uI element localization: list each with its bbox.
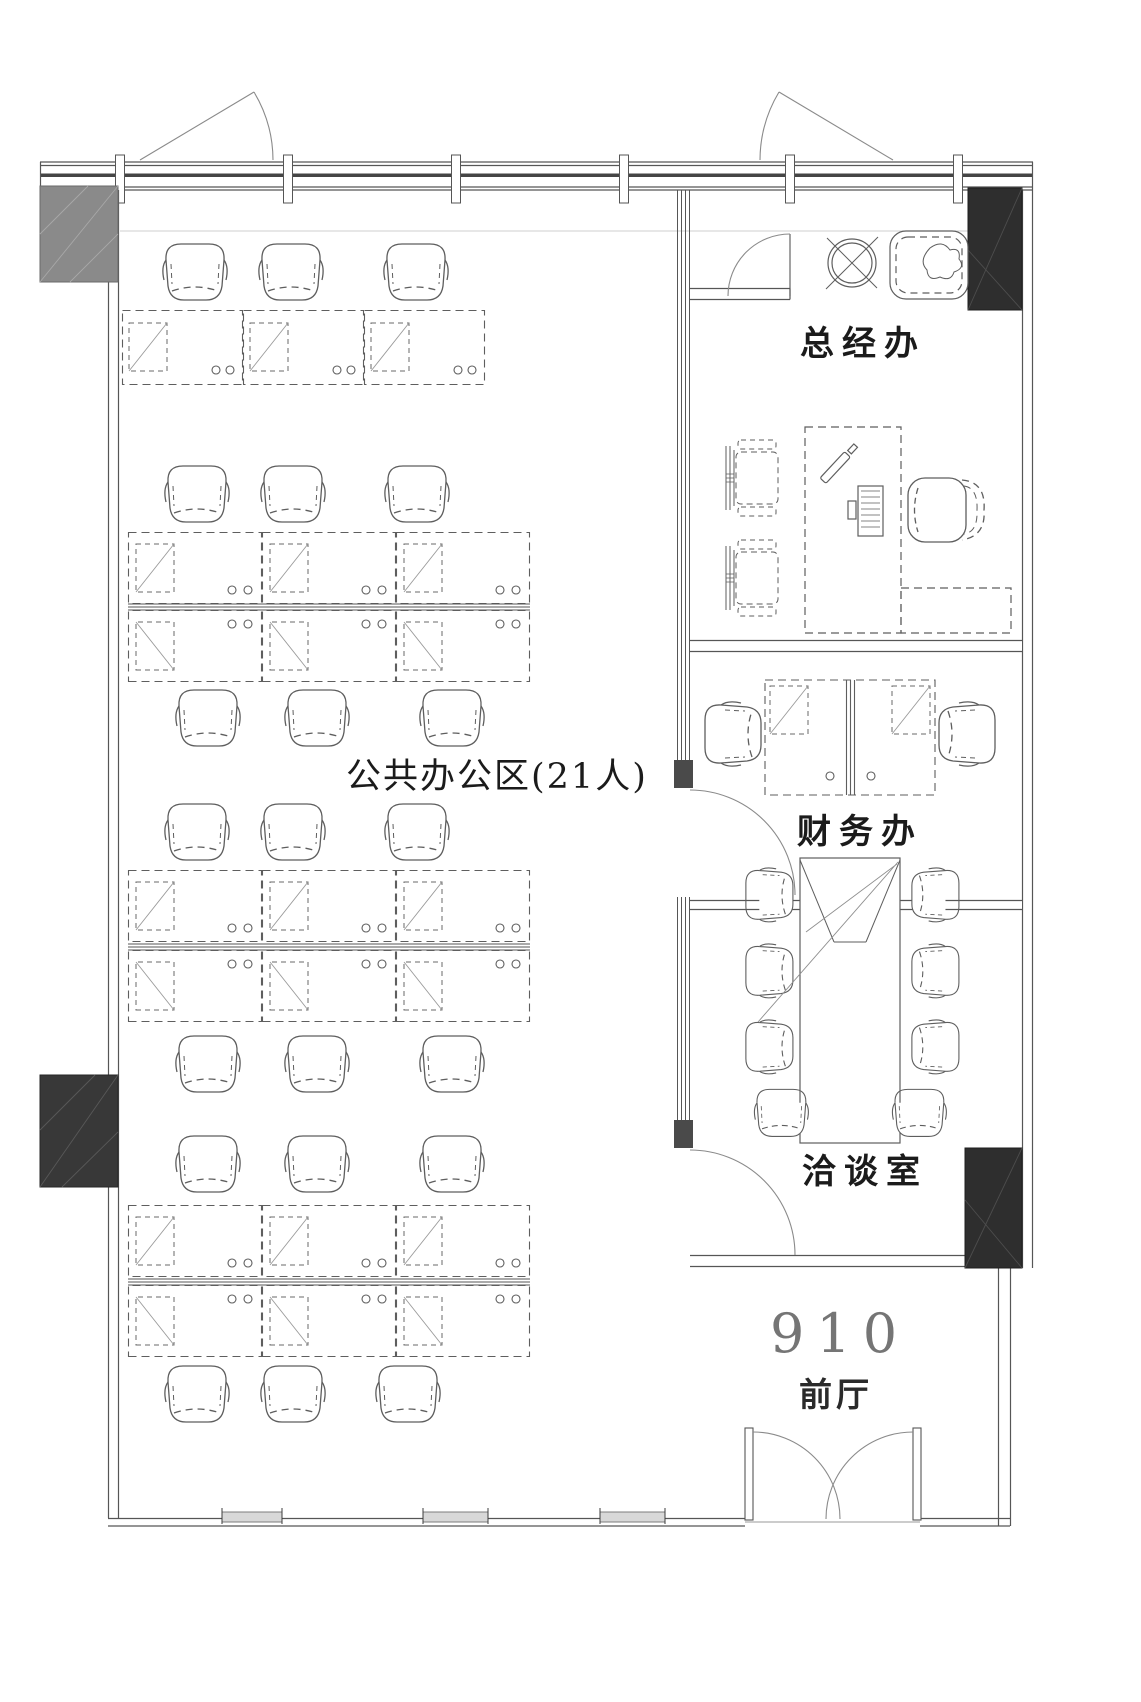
round-table: [826, 237, 878, 289]
bottom-windows: [222, 1508, 665, 1524]
meeting-room-door: [690, 1150, 795, 1255]
keyboard: [848, 486, 883, 536]
lounge-chair-plant: [890, 231, 968, 299]
guest-chair: [726, 440, 778, 516]
workstation-group-4: [128, 1136, 530, 1422]
open-office-label: 公共办公区(21人): [346, 748, 648, 799]
right-wall: [999, 190, 1033, 1526]
glass-partition: [674, 190, 693, 1148]
workstation-group-3: [128, 804, 530, 1092]
room-number-label: 910: [770, 1302, 909, 1365]
workstation-group-1: [123, 244, 485, 385]
column-mid-right: [965, 1148, 1022, 1268]
guest-chair: [726, 540, 778, 616]
floor-plan: 公共办公区(21人) 总经办 财务办 洽谈室 910 前厅: [0, 0, 1141, 1702]
gm-office-stub-wall: [690, 289, 790, 300]
entry-door-top-left: [140, 92, 273, 160]
finance-office-label: 财务办: [797, 804, 923, 853]
office-chair: [939, 702, 995, 766]
workstation-group-2: [128, 466, 530, 746]
meeting-room-south-wall: [690, 1256, 965, 1267]
gm-office-door: [728, 234, 790, 296]
floor-plan-drawing: [0, 0, 1141, 1702]
meeting-room-label: 洽谈室: [802, 1144, 928, 1193]
column-top-right: [968, 188, 1022, 310]
top-window-wall: [40, 162, 1033, 190]
finance-office-furniture: [705, 680, 995, 795]
left-wall: [109, 190, 119, 1518]
column-mid-left: [40, 1075, 118, 1187]
entry-door-top-right: [760, 92, 893, 160]
lobby-double-door: [745, 1428, 921, 1520]
office-chair: [705, 702, 761, 766]
gm-office-label: 总经办: [800, 316, 926, 365]
pen-tray: [820, 443, 859, 484]
executive-chair: [908, 478, 984, 542]
meeting-room-furniture: [746, 858, 959, 1143]
lobby-label: 前厅: [799, 1368, 873, 1416]
divider-gm-finance: [690, 641, 1022, 652]
column-top-left: [40, 186, 118, 282]
